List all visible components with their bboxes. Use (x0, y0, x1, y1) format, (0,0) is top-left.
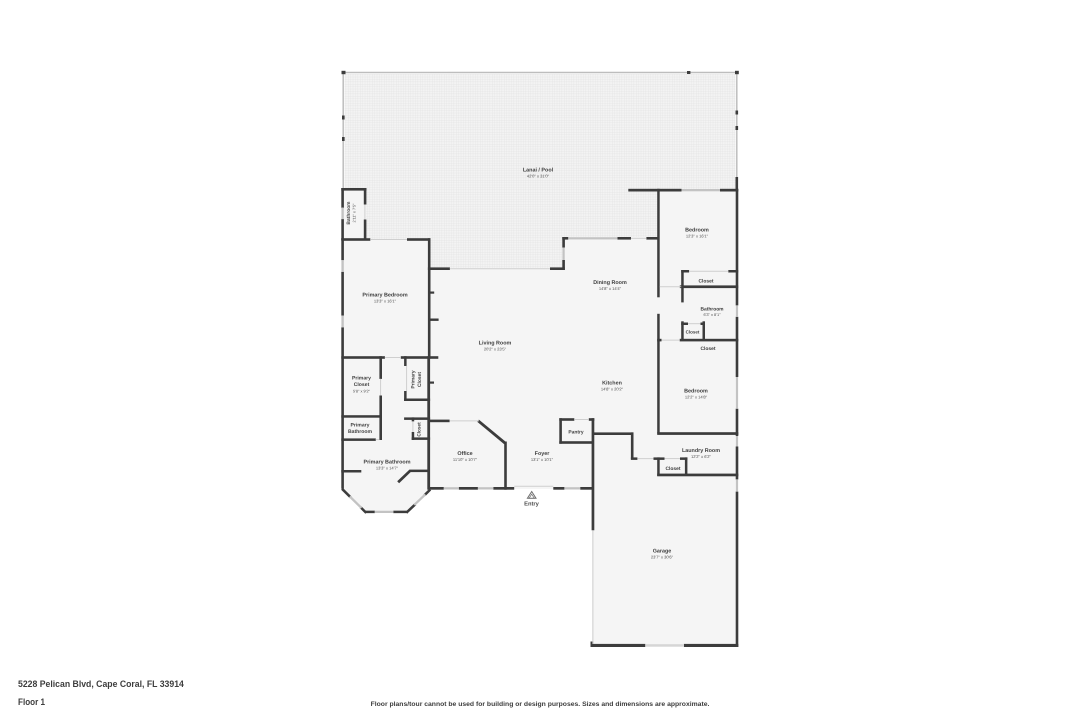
svg-text:13'1" x 10'1": 13'1" x 10'1" (531, 457, 554, 462)
svg-text:6'3" x 8'1": 6'3" x 8'1" (703, 312, 721, 317)
svg-text:23'7" x 30'6": 23'7" x 30'6" (651, 555, 674, 560)
svg-text:5'8" x 9'2": 5'8" x 9'2" (353, 389, 371, 394)
svg-text:13'3" x 14'7": 13'3" x 14'7" (376, 466, 399, 471)
svg-text:Pantry: Pantry (568, 430, 584, 436)
svg-text:12'3" x 16'1": 12'3" x 16'1" (686, 234, 709, 239)
svg-text:12'2" x 6'2": 12'2" x 6'2" (691, 454, 712, 459)
svg-text:Primary: Primary (351, 423, 370, 429)
svg-text:13'3" x 16'1": 13'3" x 16'1" (374, 299, 397, 304)
svg-text:Closet: Closet (701, 346, 716, 352)
svg-text:Primary: Primary (411, 370, 417, 388)
svg-text:Closet: Closet (354, 382, 370, 388)
svg-text:Primary: Primary (352, 375, 371, 381)
svg-text:20'2" x 23'5": 20'2" x 23'5" (484, 347, 507, 352)
svg-text:Bathroom: Bathroom (348, 429, 373, 435)
svg-text:Entry: Entry (524, 502, 540, 508)
svg-text:12'2" x 14'8": 12'2" x 14'8" (685, 395, 708, 400)
svg-text:2'11" x 7'5": 2'11" x 7'5" (352, 203, 357, 223)
svg-text:Closet: Closet (417, 422, 422, 437)
svg-text:Closet: Closet (417, 372, 423, 387)
svg-text:Closet: Closet (686, 329, 700, 334)
svg-text:42'0" x 31'0": 42'0" x 31'0" (527, 174, 550, 179)
svg-text:Closet: Closet (666, 466, 681, 472)
svg-text:11'10" x 10'7": 11'10" x 10'7" (453, 457, 478, 462)
svg-text:Closet: Closet (699, 279, 714, 285)
svg-text:14'8" x 14'4": 14'8" x 14'4" (599, 286, 622, 291)
svg-text:14'8" x 20'2": 14'8" x 20'2" (601, 387, 624, 392)
